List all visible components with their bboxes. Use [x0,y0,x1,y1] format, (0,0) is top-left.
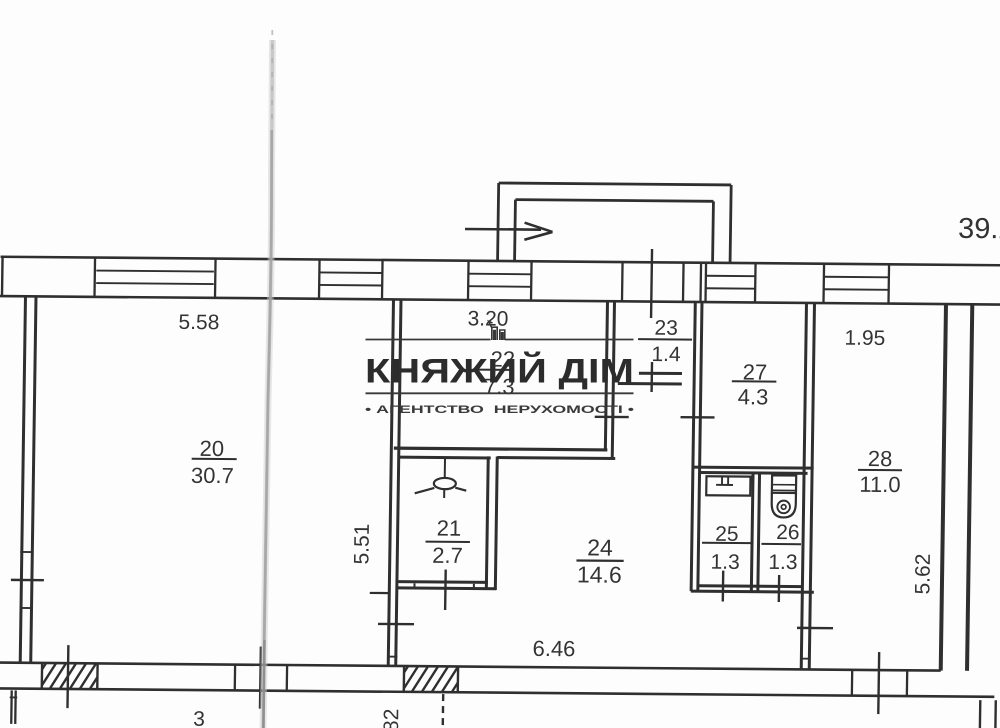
svg-text:11.0: 11.0 [859,472,901,497]
svg-text:КНЯЖИЙ ДІМ: КНЯЖИЙ ДІМ [365,352,634,391]
svg-text:1.3: 1.3 [710,551,740,574]
svg-text:3.82: 3.82 [380,709,404,728]
svg-text:5.51: 5.51 [350,524,374,565]
svg-text:5.58: 5.58 [178,311,219,334]
svg-text:• АГЕНТСТВО НЕРУХОМОСТІ •: • АГЕНТСТВО НЕРУХОМОСТІ • [365,404,634,416]
svg-text:14.6: 14.6 [577,561,622,587]
svg-text:26: 26 [776,521,800,544]
svg-text:20: 20 [199,436,224,461]
svg-text:30.7: 30.7 [191,463,234,488]
svg-text:4.3: 4.3 [738,384,769,409]
svg-text:5.62: 5.62 [911,553,935,594]
svg-text:1.3: 1.3 [768,551,798,574]
svg-text:3.20: 3.20 [467,307,508,330]
svg-text:23: 23 [654,317,678,340]
svg-text:28: 28 [868,446,893,471]
svg-text:3: 3 [193,708,205,728]
svg-text:6.46: 6.46 [532,636,575,661]
svg-text:24: 24 [587,534,613,560]
svg-text:21: 21 [437,516,462,541]
svg-text:2.7: 2.7 [432,543,463,568]
svg-text:1.95: 1.95 [844,327,885,350]
svg-text:1.4: 1.4 [651,343,681,366]
svg-text:39.2: 39.2 [958,213,1000,245]
